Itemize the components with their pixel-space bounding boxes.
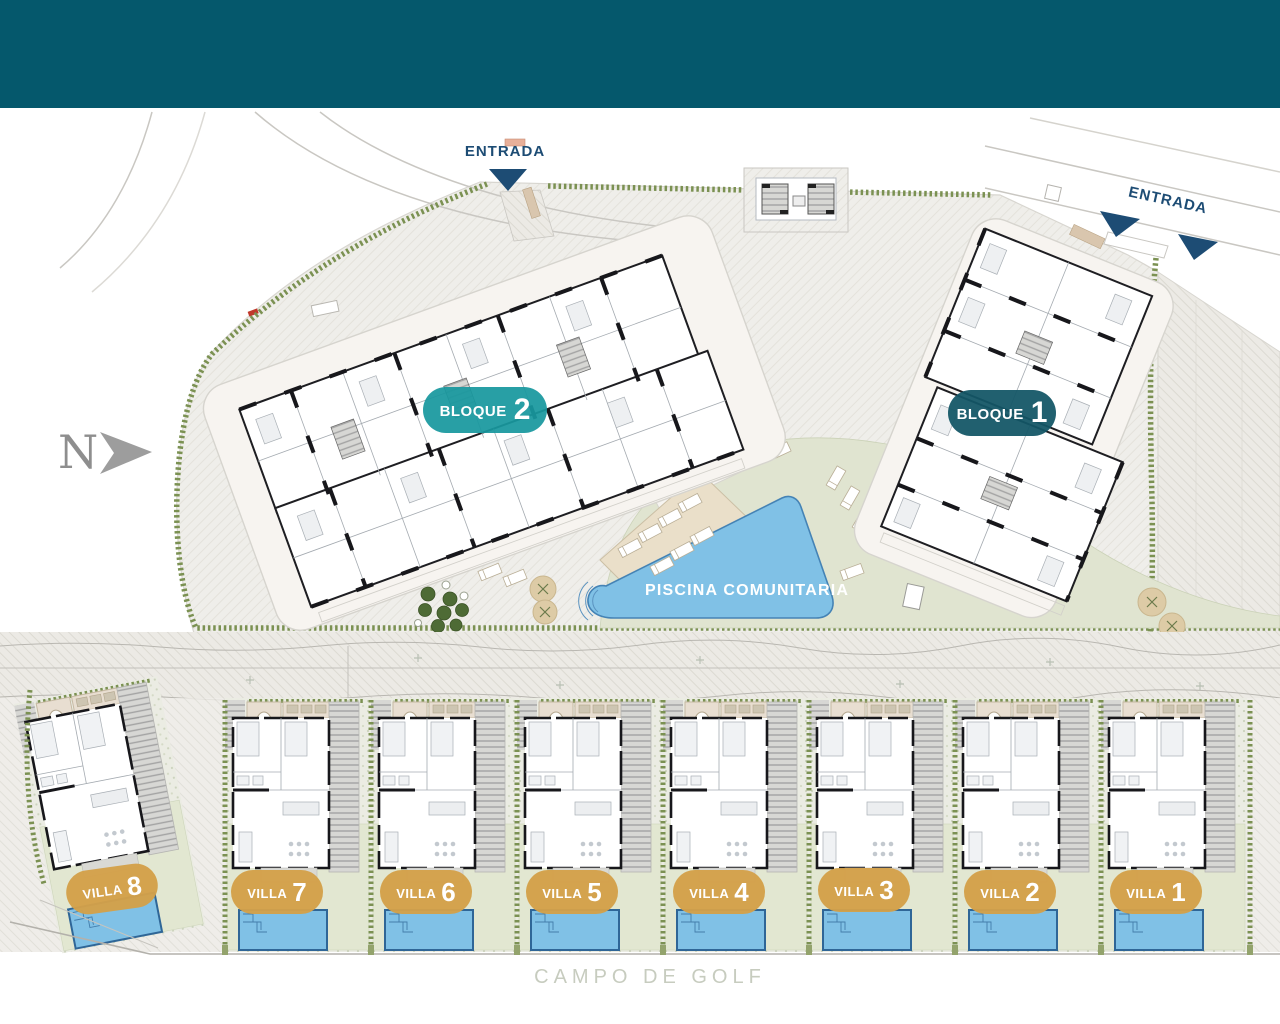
communal-pool-label: PISCINA COMUNITARIA [645, 582, 835, 600]
villa-7-label: VILLA [247, 886, 287, 901]
villa-4-number: 4 [734, 879, 748, 905]
golf-course-label: CAMPO DE GOLF [490, 966, 810, 989]
villa-5-badge: VILLA 5 [526, 870, 618, 914]
villa-1-badge: VILLA 1 [1110, 870, 1202, 914]
villa-2-number: 2 [1025, 879, 1039, 905]
street-strip [0, 632, 1280, 705]
villa-3-plot [809, 698, 955, 952]
site-plan-page: N ENTRADA ENTRADA BLOQUE 2 BLOQUE 1 PISC… [0, 0, 1280, 1024]
north-letter: N [58, 425, 98, 479]
block-2-badge: BLOQUE 2 [423, 387, 547, 433]
villa-3-badge: VILLA 3 [818, 868, 910, 912]
villa-3-label: VILLA [834, 884, 874, 899]
villa-6-number: 6 [441, 879, 455, 905]
villa-1-number: 1 [1171, 879, 1185, 905]
north-arrow-icon [100, 432, 152, 474]
villa-6-label: VILLA [396, 886, 436, 901]
villa-5-number: 5 [587, 879, 601, 905]
villa-8-label: VILLA [82, 881, 124, 901]
villa-7-number: 7 [292, 879, 306, 905]
villa-6-badge: VILLA 6 [380, 870, 472, 914]
villa-4-label: VILLA [689, 886, 729, 901]
site-plan: N ENTRADA ENTRADA BLOQUE 2 BLOQUE 1 PISC… [0, 0, 1280, 1024]
block-1-number: 1 [1031, 398, 1048, 428]
entrance-left-label: ENTRADA [460, 143, 550, 160]
site-plan-drawing: N [0, 0, 1280, 1024]
villa-row [0, 676, 1280, 955]
block-1-label: BLOQUE [957, 406, 1024, 423]
block-1-badge: BLOQUE 1 [948, 390, 1056, 436]
utility-structure [744, 168, 848, 232]
villa-8-number: 8 [125, 872, 143, 900]
entrance-right-arrow-icon [1100, 211, 1140, 237]
villa-5-label: VILLA [542, 886, 582, 901]
north-indicator: N [58, 425, 152, 479]
block-2-label: BLOQUE [440, 403, 507, 420]
villa-3-number: 3 [879, 877, 893, 903]
block-2-number: 2 [514, 395, 531, 425]
entrance-right-arrow2-icon [1178, 234, 1218, 260]
villa-1-label: VILLA [1126, 886, 1166, 901]
villa-2-badge: VILLA 2 [964, 870, 1056, 914]
villa-7-badge: VILLA 7 [231, 870, 323, 914]
villa-4-badge: VILLA 4 [673, 870, 765, 914]
villa-2-label: VILLA [980, 886, 1020, 901]
